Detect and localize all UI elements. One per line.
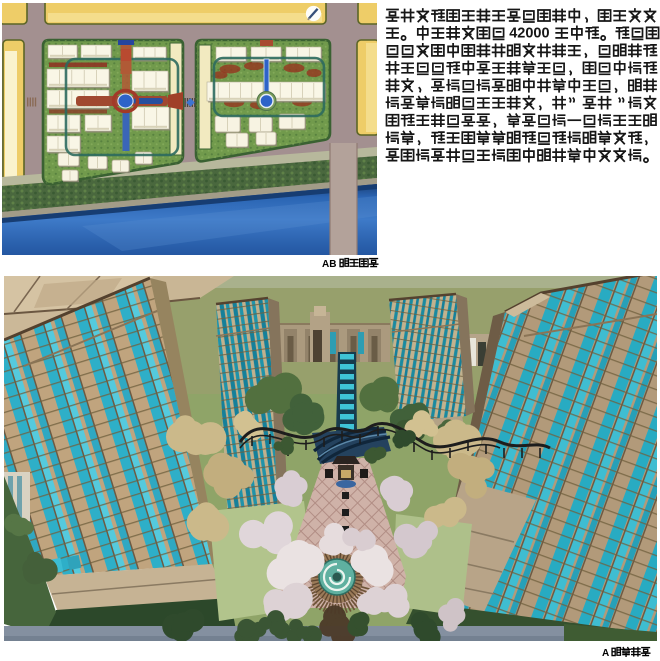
svg-text:42000: 42000	[509, 26, 549, 42]
svg-text:A: A	[602, 648, 609, 659]
svg-text:AB: AB	[322, 259, 336, 270]
